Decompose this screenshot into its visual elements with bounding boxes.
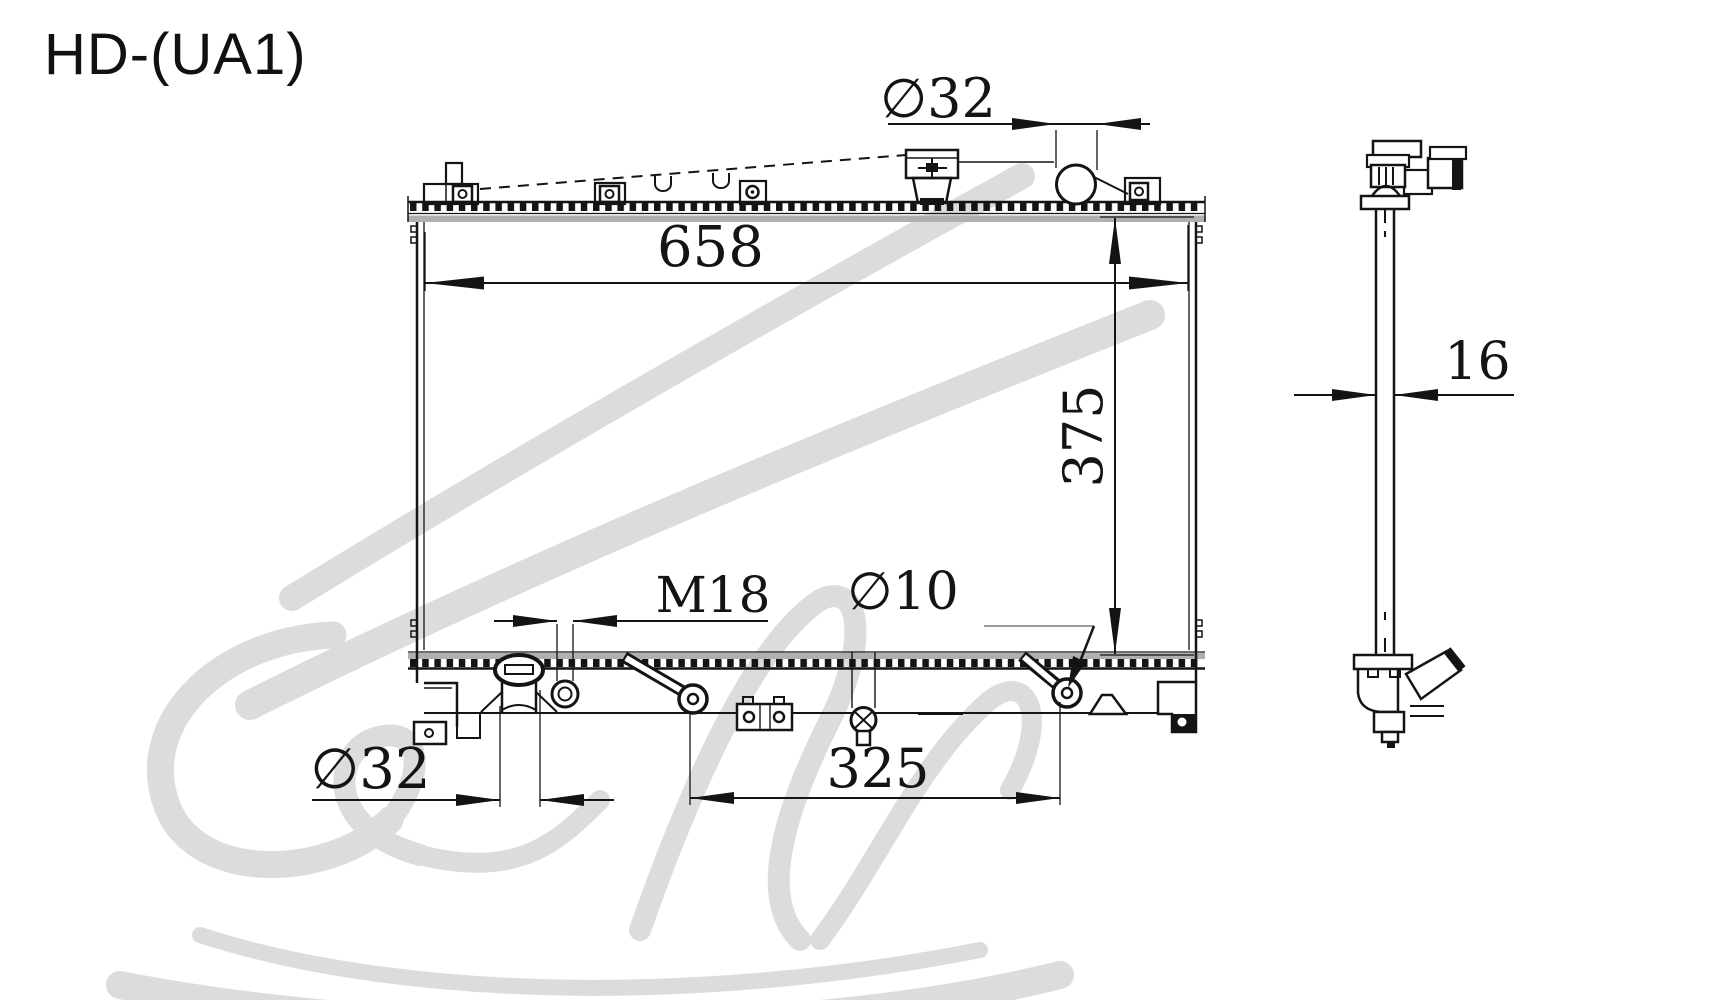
dim-top-inlet-diameter-label: ∅32 bbox=[858, 72, 1018, 126]
dim-core-height-label: 375 bbox=[1057, 371, 1111, 501]
top-clip-2 bbox=[713, 173, 729, 188]
top-bracket-3 bbox=[740, 181, 766, 204]
top-clip-1 bbox=[655, 176, 671, 191]
center-bracket bbox=[737, 697, 792, 730]
dim-core-width-label: 658 bbox=[628, 220, 793, 276]
bottom-bracket-right bbox=[1158, 682, 1196, 732]
filler-neck bbox=[906, 150, 958, 205]
dim-drain-thread-label: M18 bbox=[638, 570, 788, 620]
technical-drawing-page: HD-(UA1) ∅32 658 375 M18 ∅10 ∅32 325 16 bbox=[0, 0, 1711, 1000]
radiator-drawing bbox=[0, 0, 1711, 1000]
dim-bottom-outlet-diameter-label: ∅32 bbox=[293, 742, 448, 798]
inlet-pipe bbox=[1057, 165, 1096, 204]
top-bracket-left bbox=[424, 163, 478, 204]
drain-plug bbox=[552, 681, 578, 707]
dim-mount-hole-diameter-label: ∅10 bbox=[828, 566, 978, 618]
top-bracket-right bbox=[1125, 178, 1160, 204]
side-bottom-fitting bbox=[1354, 650, 1462, 748]
dim-bottom-span-label: 325 bbox=[798, 742, 958, 796]
side-view bbox=[1294, 141, 1514, 748]
dim-core-thickness-label: 16 bbox=[1420, 336, 1535, 388]
top-tank bbox=[424, 150, 1160, 205]
part-code-label: HD-(UA1) bbox=[44, 26, 307, 84]
side-top-fitting bbox=[1361, 141, 1466, 209]
